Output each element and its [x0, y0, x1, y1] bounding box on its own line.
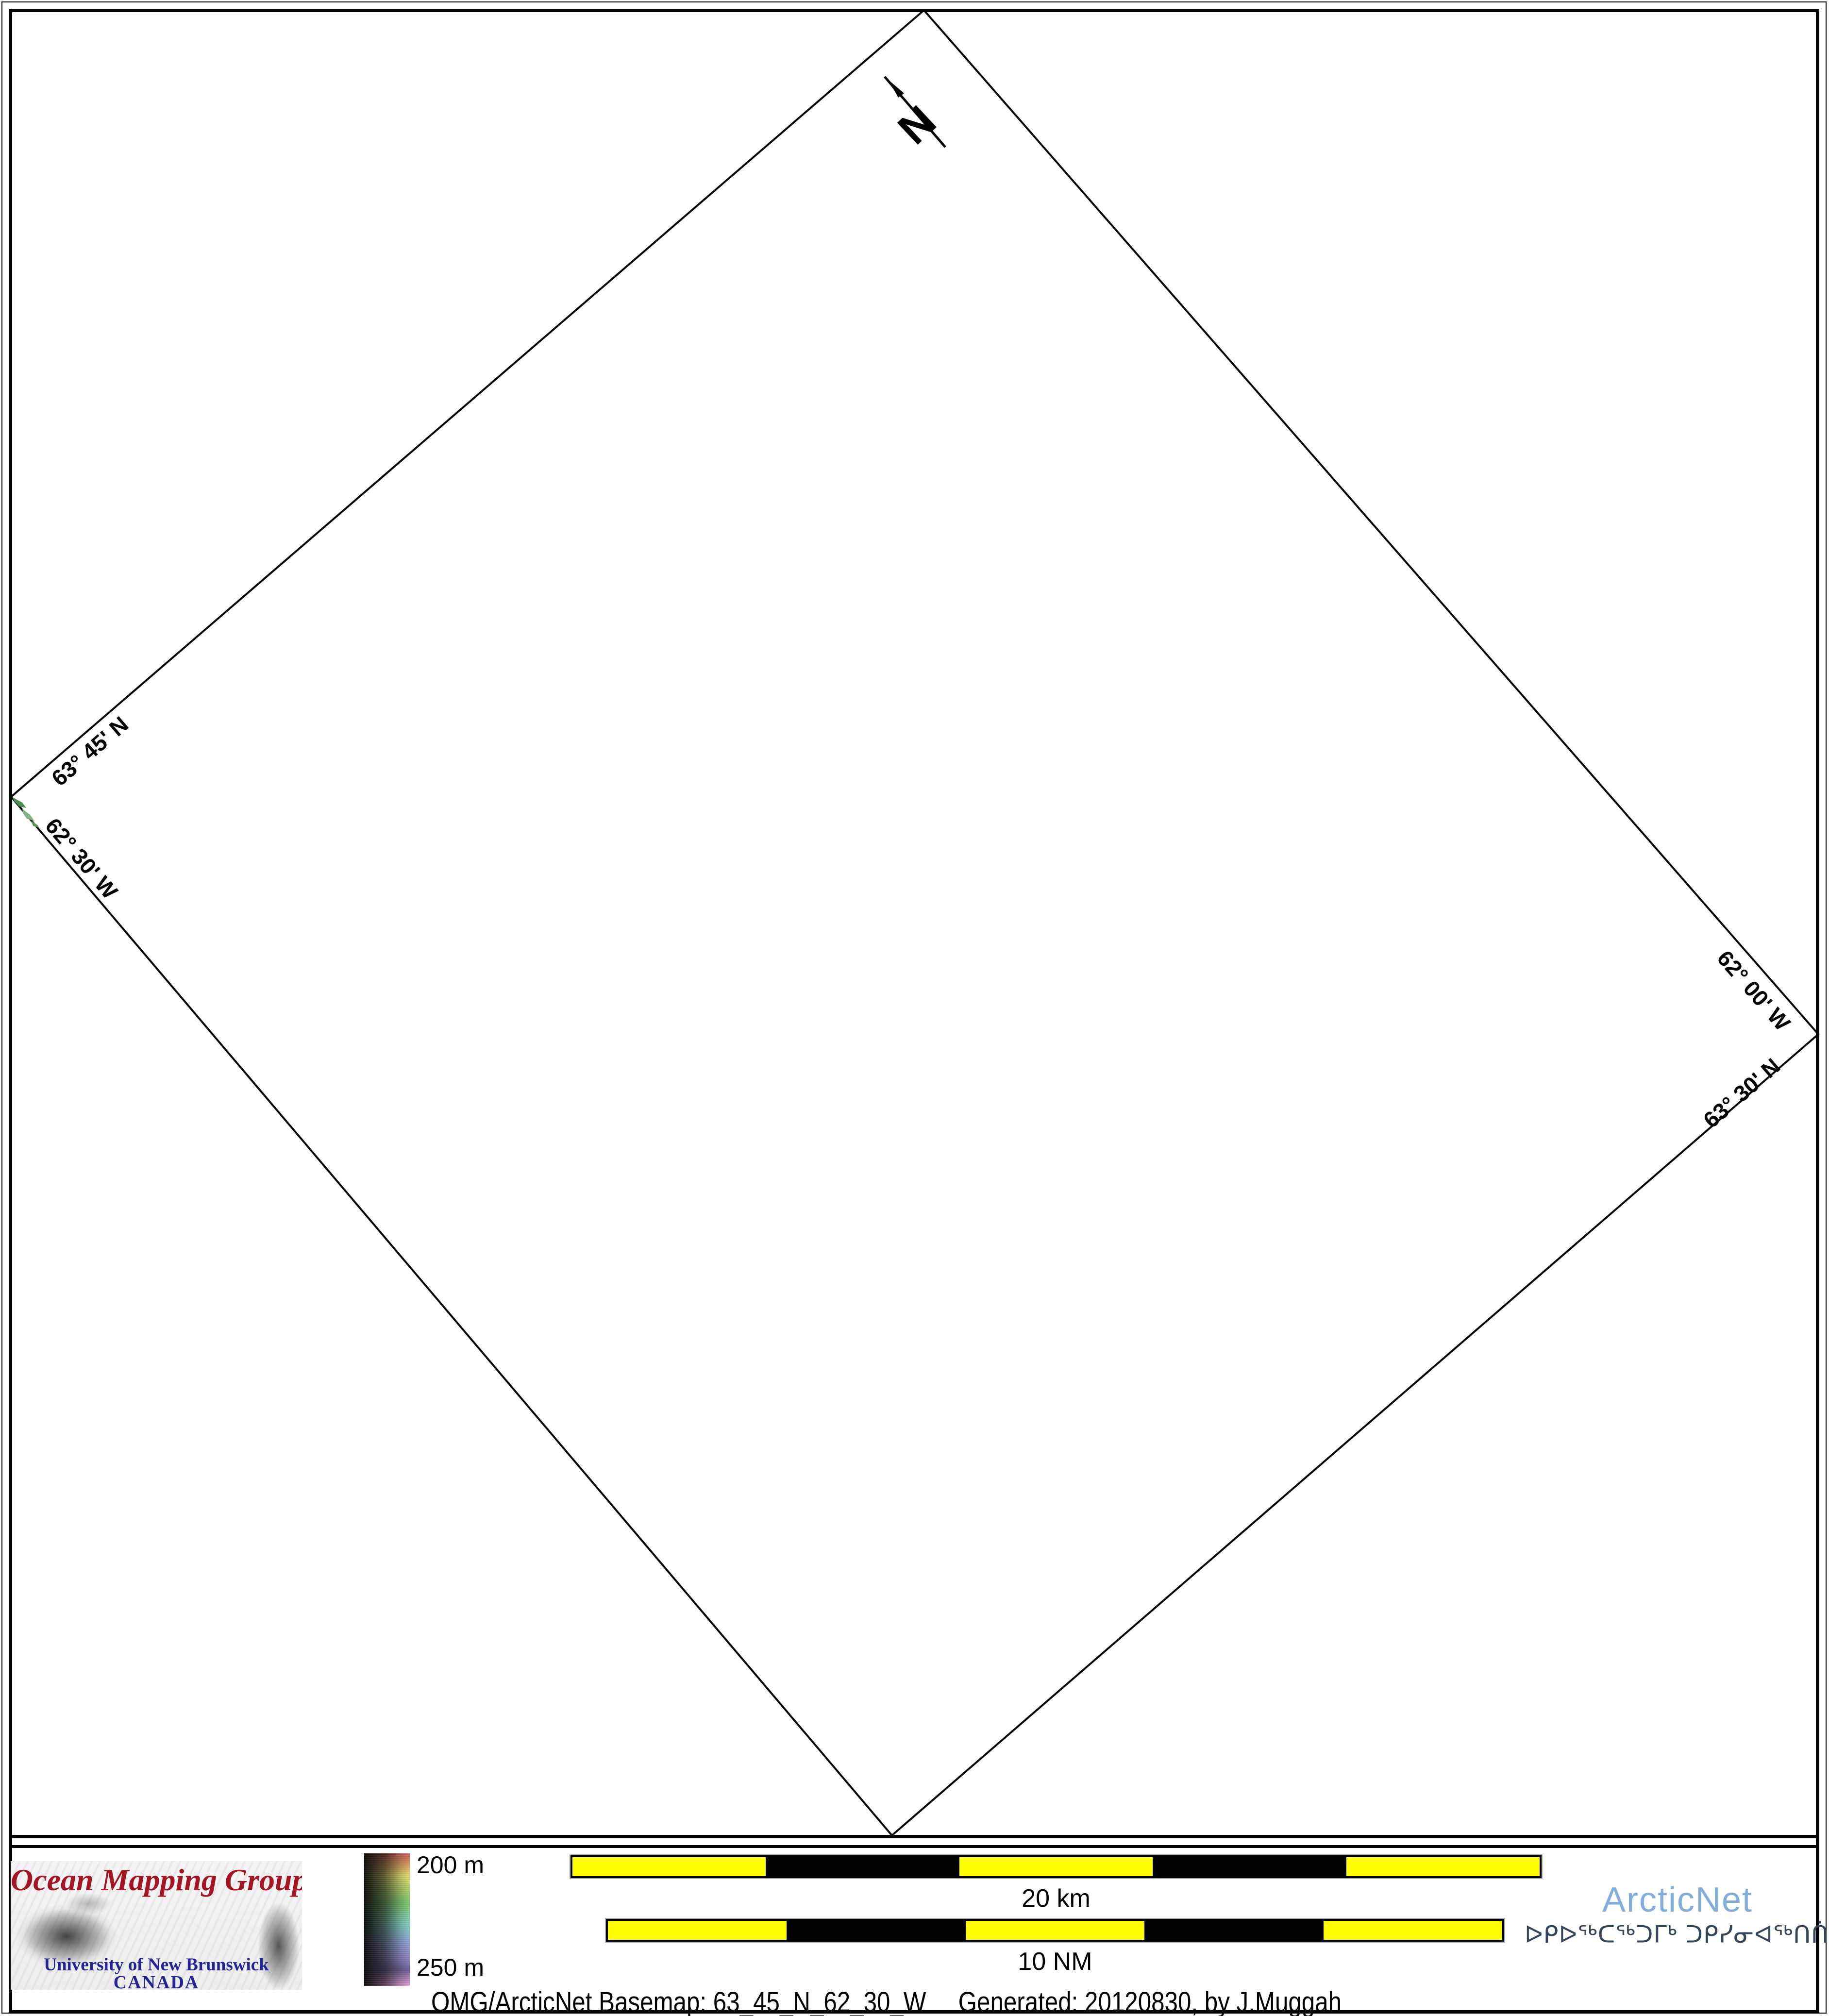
- scalebar-segment: [1144, 1921, 1323, 1940]
- scalebar-segment: [787, 1921, 965, 1940]
- arcticnet-inuktitut-text: ᐅᑭᐅᖅᑕᖅᑐᒥᒃ ᑐᑭᓯᓂᐊᖅᑎᑏᑦ: [1525, 1921, 1826, 1949]
- scalebar-segment: [1346, 1857, 1540, 1876]
- scalebar-segment: [1324, 1921, 1502, 1940]
- inner-border: [9, 9, 1819, 2014]
- scalebar-segment: [572, 1857, 766, 1876]
- caption-generated: Generated: 20120830, by J.Muggah: [958, 1986, 1342, 2016]
- scalebar-segment: [1153, 1857, 1346, 1876]
- scalebar-nm: [606, 1919, 1504, 1942]
- depth-colorbar: [364, 1853, 410, 1986]
- scalebar-segment: [766, 1857, 959, 1876]
- scalebar-segment: [608, 1921, 787, 1940]
- arcticnet-logo: ArcticNet: [1534, 1880, 1821, 1920]
- caption: OMG/ArcticNet Basemap: 63_45_N_62_30_W G…: [431, 1986, 1342, 2016]
- basemap-page: N 63° 45' N 62° 30' W 62° 00' W 63° 30' …: [0, 0, 1829, 2016]
- scalebar-segment: [966, 1921, 1144, 1940]
- colorbar-top-label: 200 m: [417, 1851, 484, 1879]
- omg-logo: Ocean Mapping Group University of New Br…: [11, 1861, 302, 1990]
- scalebar-km: [571, 1855, 1542, 1878]
- omg-logo-title: Ocean Mapping Group: [11, 1862, 302, 1898]
- scalebar-segment: [959, 1857, 1153, 1876]
- omg-logo-country: CANADA: [11, 1972, 302, 1990]
- scalebar-km-label: 20 km: [571, 1884, 1542, 1913]
- caption-basemap-id: OMG/ArcticNet Basemap: 63_45_N_62_30_W: [431, 1986, 926, 2016]
- scalebar-nm-label: 10 NM: [606, 1947, 1504, 1976]
- colorbar-bottom-label: 250 m: [417, 1953, 484, 1982]
